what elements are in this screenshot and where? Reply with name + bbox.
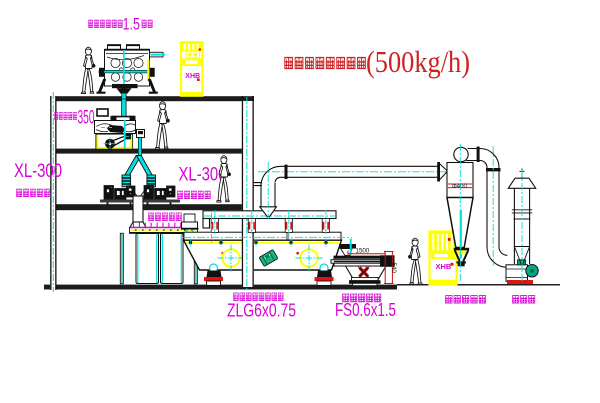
svg-text:ZLG6x0.75: ZLG6x0.75 bbox=[227, 301, 296, 321]
svg-text:XL-300: XL-300 bbox=[14, 161, 62, 182]
svg-text:FS0.6x1.5: FS0.6x1.5 bbox=[335, 300, 396, 320]
svg-text:540: 540 bbox=[390, 263, 397, 274]
svg-text:350: 350 bbox=[78, 108, 95, 129]
svg-text:1.5: 1.5 bbox=[123, 15, 141, 34]
svg-text:XHB: XHB bbox=[436, 262, 452, 271]
svg-text:(500kg/h): (500kg/h) bbox=[366, 44, 470, 79]
svg-text:Φ400: Φ400 bbox=[452, 184, 467, 190]
svg-text:1500: 1500 bbox=[356, 247, 370, 254]
